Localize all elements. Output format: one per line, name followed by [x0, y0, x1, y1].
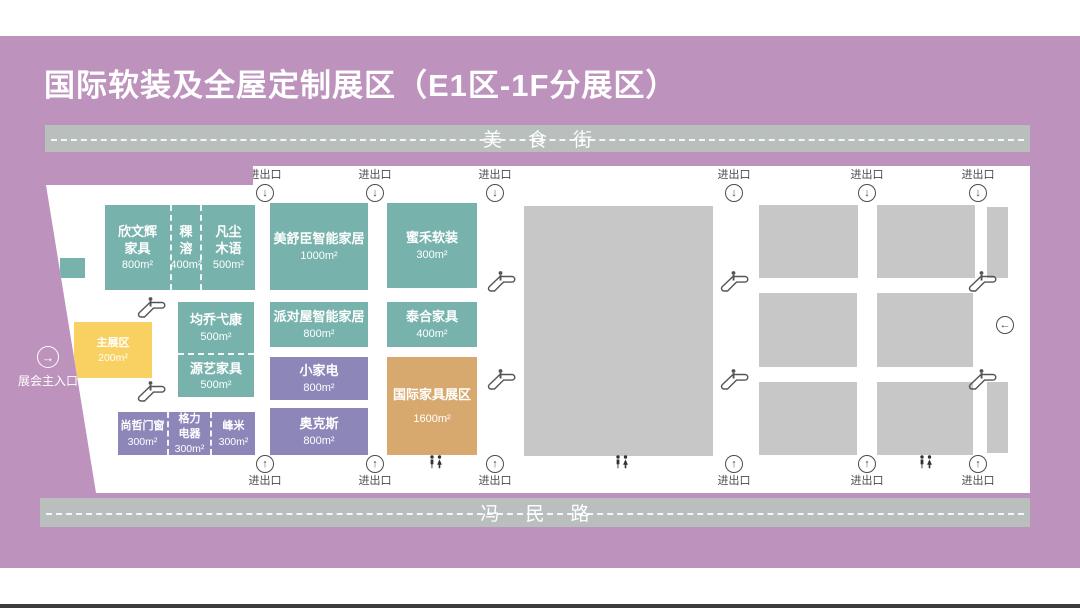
booth-meishuchen-smart-home: 美舒臣智能家居 1000m²	[270, 203, 368, 290]
booth-group-bottomleft: 尚哲门窗 300m² 格力 电器 300m² 峰米 300m²	[118, 412, 255, 455]
booth-xinwenhui-furniture: 欣文辉 家具 800m²	[105, 205, 170, 290]
main-entrance-label: 展会主入口	[18, 372, 78, 389]
exit-marker-top-2: 进出口 ↓	[345, 169, 405, 202]
right-arrow-icon: →	[37, 346, 59, 368]
down-arrow-icon: ↓	[858, 184, 876, 202]
booth-kerong: 稞 溶 400m²	[170, 205, 200, 290]
vacant-strip	[987, 382, 1008, 453]
vacant-block	[759, 205, 858, 278]
booth-group-midleft: 均乔弋康 500m² 源艺家具 500m²	[178, 302, 254, 397]
vacant-block	[877, 293, 973, 367]
up-arrow-icon: ↑	[486, 455, 504, 473]
exit-marker-bottom-5: ↑ 进出口	[837, 455, 897, 488]
escalator-icon	[720, 270, 750, 294]
restroom-icon	[917, 455, 937, 471]
food-street-label: 美食街	[483, 125, 618, 152]
food-street-bar: 美食街	[45, 125, 1030, 152]
exit-marker-top-1: 进出口 ↓	[235, 169, 295, 202]
escalator-icon	[137, 296, 167, 320]
down-arrow-icon: ↓	[725, 184, 743, 202]
booth-mihe-soft-deco: 蜜禾软装 300m²	[387, 203, 477, 288]
exit-marker-bottom-4: ↑ 进出口	[704, 455, 764, 488]
booth-small-appliances: 小家电 800m²	[270, 357, 368, 400]
up-arrow-icon: ↑	[256, 455, 274, 473]
bottom-border-line	[0, 604, 1080, 608]
main-entrance-marker: → 展会主入口	[8, 346, 88, 389]
up-arrow-icon: ↑	[366, 455, 384, 473]
booth-intl-furniture-zone: 国际家具展区 1600m²	[387, 357, 477, 455]
exit-marker-top-3: 进出口 ↓	[465, 169, 525, 202]
exit-marker-bottom-6: ↑ 进出口	[948, 455, 1008, 488]
vacant-block	[759, 293, 857, 367]
exit-marker-top-6: 进出口 ↓	[948, 169, 1008, 202]
vacant-block	[759, 382, 857, 455]
small-booth-block	[60, 258, 85, 278]
escalator-icon	[720, 368, 750, 392]
vacant-block-large	[524, 206, 713, 456]
booth-junqiao-yikang: 均乔弋康 500m²	[178, 302, 254, 353]
booth-aux: 奥克斯 800m²	[270, 408, 368, 455]
booth-fengmi: 峰米 300m²	[210, 412, 255, 455]
fengmin-road-label: 冯民路	[480, 499, 615, 526]
down-arrow-icon: ↓	[969, 184, 987, 202]
escalator-icon	[487, 368, 517, 392]
exit-marker-bottom-3: ↑ 进出口	[465, 455, 525, 488]
booth-paiduiwu-smart-home: 派对屋智能家居 800m²	[270, 302, 368, 347]
booth-shangzhe-doors: 尚哲门窗 300m²	[118, 412, 167, 455]
booth-group-topleft: 欣文辉 家具 800m² 稞 溶 400m² 凡尘 木语 500m²	[105, 205, 255, 290]
escalator-icon	[968, 270, 998, 294]
booth-fanchen-muyu: 凡尘 木语 500m²	[200, 205, 255, 290]
escalator-icon	[968, 368, 998, 392]
up-arrow-icon: ↑	[858, 455, 876, 473]
exit-marker-top-5: 进出口 ↓	[837, 169, 897, 202]
fengmin-road-bar: 冯民路	[40, 498, 1030, 527]
exit-marker-top-4: 进出口 ↓	[704, 169, 764, 202]
up-arrow-icon: ↑	[725, 455, 743, 473]
down-arrow-icon: ↓	[366, 184, 384, 202]
exit-marker-bottom-1: ↑ 进出口	[235, 455, 295, 488]
booth-gree-electric: 格力 电器 300m²	[167, 412, 210, 455]
left-arrow-icon: ←	[996, 316, 1014, 334]
vacant-block	[877, 205, 975, 278]
vacant-block	[877, 382, 973, 455]
escalator-icon	[487, 270, 517, 294]
escalator-icon	[137, 380, 167, 404]
up-arrow-icon: ↑	[969, 455, 987, 473]
page-title: 国际软装及全屋定制展区（E1区-1F分展区）	[44, 60, 677, 105]
floor-plan-area: 进出口 ↓ 进出口 ↓ 进出口 ↓ 进出口 ↓ 进出口 ↓ 进出口 ↓ 欣文辉 …	[0, 163, 1030, 493]
down-arrow-icon: ↓	[256, 184, 274, 202]
purple-background-panel: 国际软装及全屋定制展区（E1区-1F分展区） 美食街 进出口 ↓ 进出口 ↓ 进…	[0, 36, 1080, 568]
down-arrow-icon: ↓	[486, 184, 504, 202]
booth-yuanyi-furniture: 源艺家具 500m²	[178, 353, 254, 397]
restroom-icon	[427, 455, 447, 471]
restroom-icon	[613, 455, 633, 471]
vacant-strip	[987, 207, 1008, 278]
booth-taihe-furniture: 泰合家具 400m²	[387, 302, 477, 347]
exit-marker-bottom-2: ↑ 进出口	[345, 455, 405, 488]
